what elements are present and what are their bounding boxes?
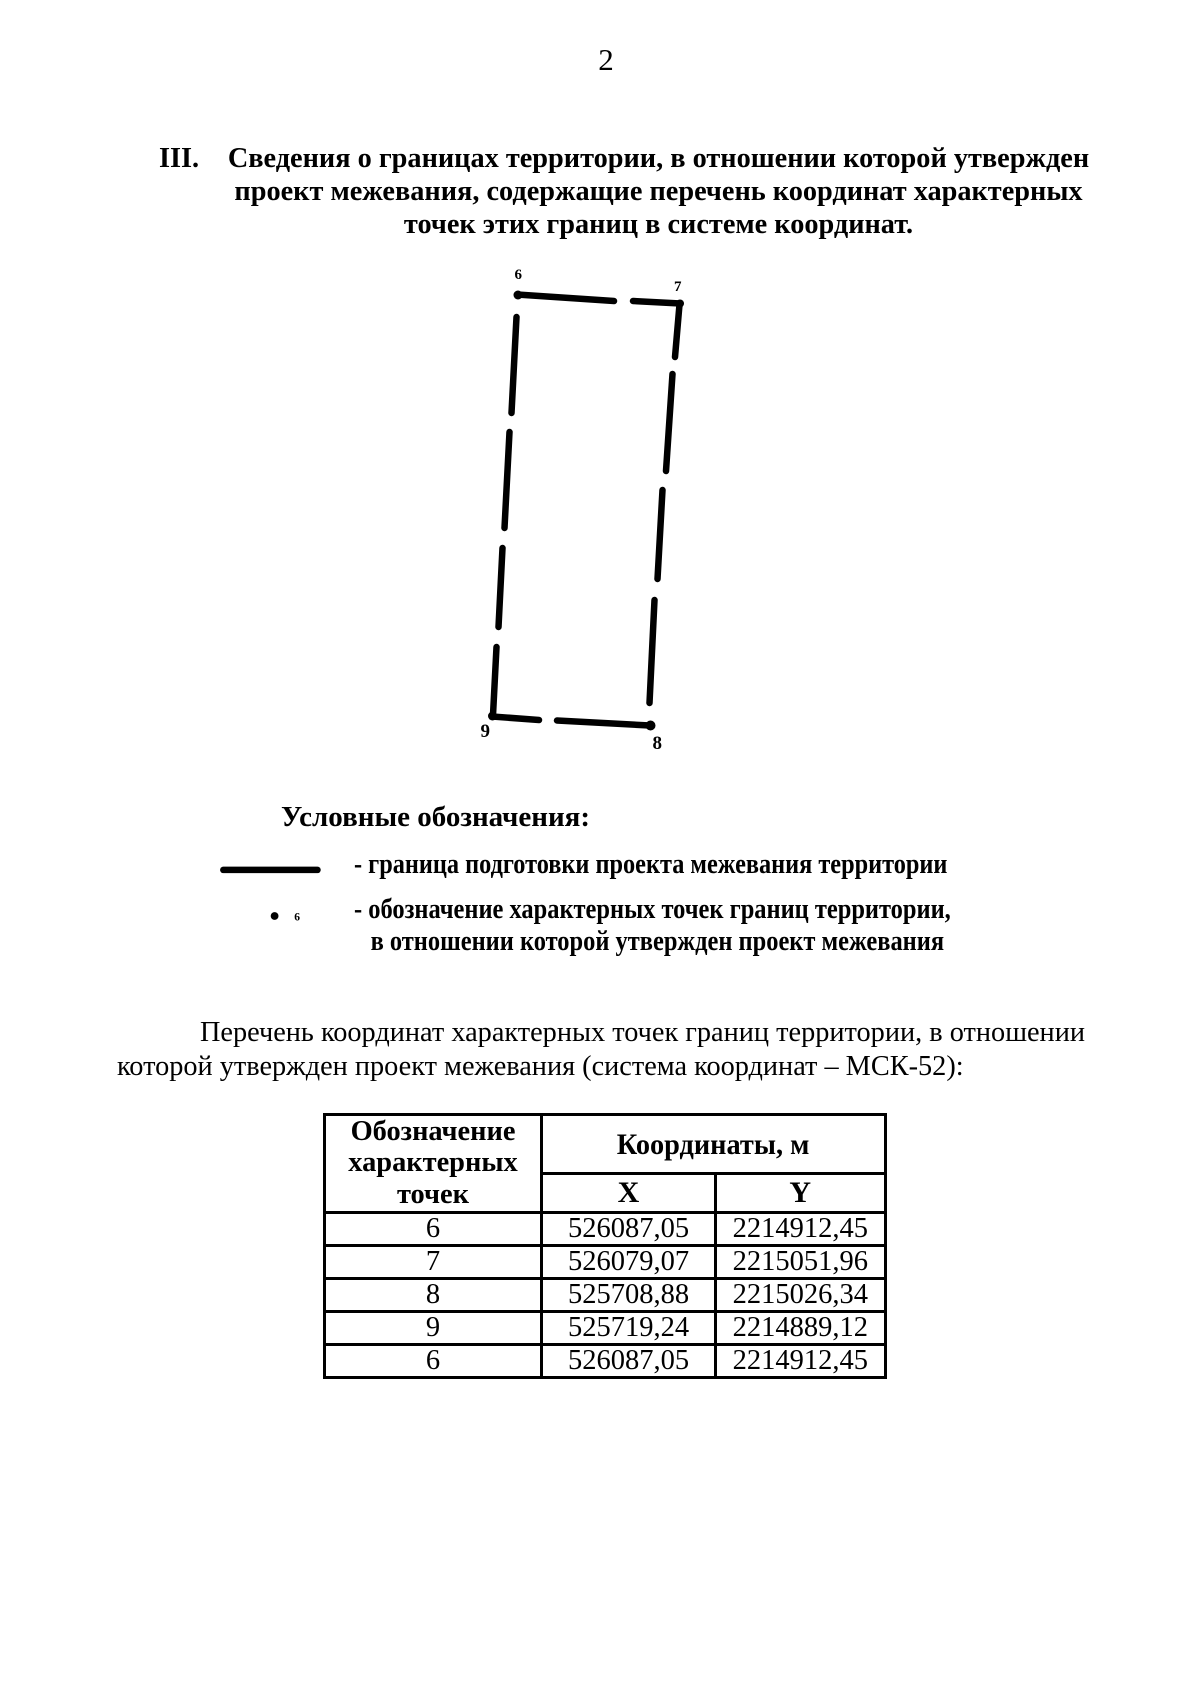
svg-text:6: 6: [294, 911, 300, 923]
